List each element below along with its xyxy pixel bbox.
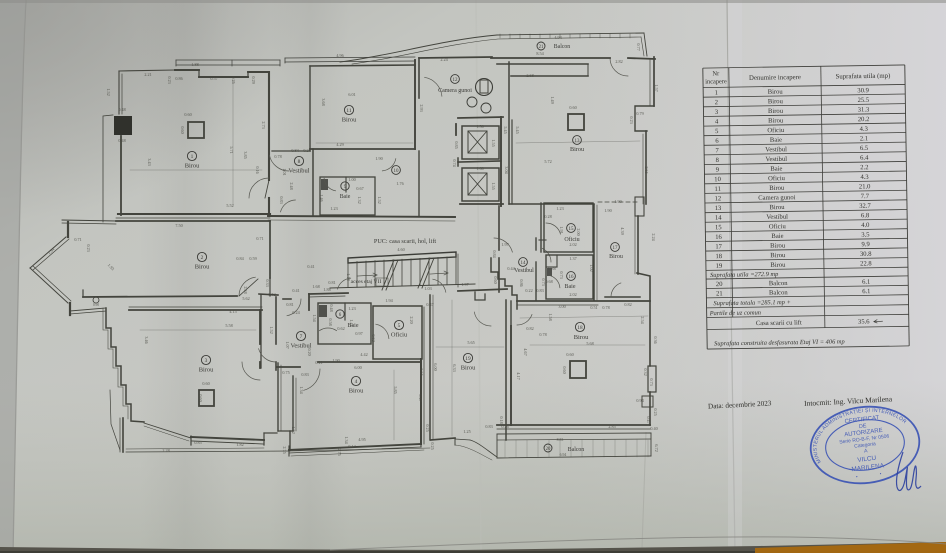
svg-text:2.28: 2.28: [162, 448, 169, 453]
svg-text:0.33: 0.33: [265, 279, 270, 286]
svg-text:4.17: 4.17: [516, 372, 521, 379]
svg-text:6.01: 6.01: [348, 92, 355, 97]
svg-text:5.45: 5.45: [515, 126, 520, 133]
svg-text:0.97: 0.97: [355, 331, 362, 336]
svg-text:1.76: 1.76: [396, 181, 403, 186]
svg-text:6.00: 6.00: [354, 365, 361, 370]
svg-text:2.02: 2.02: [569, 292, 576, 297]
svg-text:Birou: Birou: [570, 146, 584, 153]
svg-text:0.84: 0.84: [291, 148, 299, 153]
svg-text:0.84: 0.84: [236, 256, 244, 261]
svg-text:PUC: casa scarii, hol, lift: PUC: casa scarii, hol, lift: [374, 238, 436, 245]
svg-text:21: 21: [716, 290, 723, 297]
svg-text:6.8: 6.8: [861, 212, 870, 219]
svg-text:0.60: 0.60: [569, 105, 576, 110]
svg-text:7: 7: [300, 334, 303, 340]
svg-text:5.71: 5.71: [229, 146, 234, 153]
svg-text:4.60: 4.60: [397, 247, 404, 252]
svg-text:Oficiu: Oficiu: [769, 223, 787, 230]
svg-text:0.60: 0.60: [493, 276, 498, 283]
svg-text:20: 20: [546, 447, 551, 452]
svg-text:0.77: 0.77: [636, 43, 641, 50]
svg-text:0.22: 0.22: [525, 288, 532, 293]
svg-text:0.78: 0.78: [274, 154, 281, 159]
svg-text:0.25: 0.25: [653, 408, 658, 415]
svg-text:0.74: 0.74: [452, 159, 457, 167]
svg-text:0.83: 0.83: [536, 288, 543, 293]
svg-text:0.94: 0.94: [636, 398, 644, 403]
svg-text:1.97: 1.97: [461, 282, 468, 287]
svg-text:1.02: 1.02: [589, 264, 594, 271]
svg-text:0.48: 0.48: [118, 107, 125, 112]
svg-text:2.02: 2.02: [569, 242, 576, 247]
svg-text:11: 11: [714, 186, 720, 193]
svg-text:0.60: 0.60: [562, 366, 567, 373]
svg-text:21: 21: [539, 45, 544, 50]
svg-text:4.94: 4.94: [554, 35, 562, 40]
svg-text:4.3: 4.3: [860, 174, 869, 181]
svg-text:Casa scarii cu lift: Casa scarii cu lift: [756, 319, 802, 327]
svg-text:Oficiu: Oficiu: [768, 175, 786, 182]
svg-text:Vestibul: Vestibul: [765, 146, 787, 153]
svg-text:7.50: 7.50: [175, 223, 182, 228]
svg-text:0.82: 0.82: [624, 302, 631, 307]
svg-text:Birou: Birou: [770, 262, 786, 269]
svg-text:5.62: 5.62: [242, 296, 249, 301]
svg-text:Balcon: Balcon: [769, 280, 788, 287]
svg-text:0.41: 0.41: [292, 288, 299, 293]
svg-text:0.79: 0.79: [636, 111, 643, 116]
svg-text:1.18: 1.18: [346, 273, 351, 280]
svg-text:0.60: 0.60: [198, 394, 203, 401]
svg-text:Birou: Birou: [195, 264, 210, 271]
svg-text:1.00: 1.00: [348, 177, 355, 182]
svg-text:2.24: 2.24: [651, 233, 656, 241]
svg-text:12: 12: [453, 78, 459, 83]
svg-text:32.7: 32.7: [859, 203, 871, 210]
svg-text:1.01: 1.01: [282, 168, 287, 175]
svg-text:2.1: 2.1: [860, 135, 868, 142]
svg-text:1.97: 1.97: [501, 242, 508, 247]
svg-text:2.82: 2.82: [615, 59, 622, 64]
svg-text:9.9: 9.9: [861, 241, 870, 248]
svg-text:0.88: 0.88: [548, 266, 555, 271]
svg-text:1.90: 1.90: [375, 156, 382, 161]
svg-text:5.85: 5.85: [393, 386, 398, 393]
svg-text:2.75: 2.75: [337, 448, 342, 455]
svg-text:1.55: 1.55: [491, 139, 496, 146]
svg-text:Suprafata utila =272.9 mp: Suprafata utila =272.9 mp: [710, 271, 778, 279]
svg-text:Birou: Birou: [609, 254, 623, 260]
svg-text:0.85: 0.85: [454, 141, 459, 148]
svg-text:17: 17: [613, 246, 619, 251]
svg-text:1.23: 1.23: [330, 206, 337, 211]
svg-text:4.29: 4.29: [336, 142, 343, 147]
svg-text:0.25: 0.25: [425, 424, 430, 431]
svg-text:1.52: 1.52: [106, 88, 111, 95]
svg-text:2.48: 2.48: [243, 286, 248, 293]
svg-text:3.00: 3.00: [558, 304, 565, 309]
svg-text:0.60: 0.60: [184, 112, 191, 117]
svg-text:18: 18: [715, 253, 722, 260]
svg-text:1.90: 1.90: [614, 199, 621, 204]
svg-text:5.72: 5.72: [544, 159, 551, 164]
svg-text:Birou: Birou: [770, 252, 786, 259]
svg-text:0.23: 0.23: [86, 244, 91, 251]
svg-text:0.83: 0.83: [301, 372, 308, 377]
svg-text:Balcon: Balcon: [554, 44, 571, 50]
svg-text:0.24: 0.24: [303, 148, 311, 153]
svg-text:30.9: 30.9: [857, 87, 869, 94]
svg-text:Birou: Birou: [770, 242, 786, 249]
svg-text:2: 2: [715, 99, 718, 106]
svg-text:Vestibul: Vestibul: [765, 156, 787, 163]
svg-text:1.55: 1.55: [491, 182, 496, 189]
svg-text:1.57: 1.57: [654, 84, 659, 91]
svg-text:Birou: Birou: [769, 185, 785, 192]
svg-text:0.59: 0.59: [249, 256, 256, 261]
svg-text:0.84: 0.84: [492, 250, 497, 258]
svg-text:16: 16: [715, 234, 722, 241]
svg-text:1.88: 1.88: [323, 287, 330, 292]
svg-text:1.37: 1.37: [569, 256, 576, 261]
svg-text:2: 2: [201, 255, 204, 261]
svg-text:1.60: 1.60: [476, 166, 483, 171]
svg-text:22.8: 22.8: [860, 260, 872, 267]
svg-text:3.68: 3.68: [321, 98, 326, 105]
svg-text:3.85: 3.85: [243, 151, 248, 158]
svg-text:6.1: 6.1: [862, 279, 870, 286]
svg-text:0.60: 0.60: [566, 352, 573, 357]
svg-text:1.90: 1.90: [332, 358, 339, 363]
svg-text:0.23: 0.23: [167, 76, 172, 83]
svg-text:0.81: 0.81: [328, 280, 335, 285]
svg-text:2.2: 2.2: [860, 164, 868, 171]
svg-text:1.94: 1.94: [385, 298, 393, 303]
svg-text:31.3: 31.3: [858, 106, 870, 113]
svg-text:2.20: 2.20: [409, 316, 414, 323]
svg-text:6.33: 6.33: [452, 364, 457, 371]
svg-text:Camera gunoi: Camera gunoi: [438, 88, 472, 94]
svg-text:1: 1: [714, 90, 717, 97]
svg-text:0.73: 0.73: [649, 378, 654, 385]
svg-text:3.5: 3.5: [861, 231, 870, 238]
svg-text:1.23: 1.23: [556, 206, 563, 211]
svg-text:2.24: 2.24: [440, 57, 448, 62]
svg-text:Vestibul: Vestibul: [766, 214, 788, 221]
svg-text:Birou: Birou: [768, 98, 784, 105]
svg-text:0.47: 0.47: [646, 416, 651, 423]
svg-text:1.25: 1.25: [463, 429, 470, 434]
svg-text:Baie: Baie: [565, 284, 576, 290]
svg-text:0.44: 0.44: [507, 266, 515, 271]
svg-text:0.48: 0.48: [329, 304, 334, 311]
svg-text:Oficiu: Oficiu: [767, 127, 785, 134]
svg-text:2.65: 2.65: [644, 166, 649, 173]
svg-text:Baie: Baie: [771, 233, 783, 240]
svg-text:0.23: 0.23: [629, 116, 634, 123]
svg-text:Oficiu: Oficiu: [391, 332, 408, 339]
svg-text:1.52: 1.52: [291, 426, 296, 433]
svg-text:0.86: 0.86: [175, 76, 182, 81]
svg-text:13: 13: [715, 205, 722, 212]
svg-text:25.5: 25.5: [858, 97, 870, 104]
svg-text:Birou: Birou: [199, 367, 214, 374]
svg-text:13: 13: [575, 139, 581, 144]
svg-text:Vestibul: Vestibul: [289, 168, 310, 175]
svg-text:0.67: 0.67: [356, 186, 363, 191]
svg-text:1.50: 1.50: [476, 124, 483, 129]
svg-text:17: 17: [715, 243, 722, 250]
svg-text:Birou: Birou: [768, 117, 784, 124]
svg-text:Birou: Birou: [768, 108, 784, 115]
svg-text:7.7: 7.7: [861, 193, 870, 200]
svg-text:0.14: 0.14: [348, 444, 356, 449]
svg-text:1.03: 1.03: [424, 286, 431, 291]
svg-text:0.62: 0.62: [371, 334, 376, 341]
svg-text:Baie: Baie: [770, 166, 782, 173]
svg-text:2.93: 2.93: [419, 104, 424, 111]
svg-text:8.53: 8.53: [557, 438, 564, 442]
svg-text:1.90: 1.90: [604, 208, 611, 213]
svg-text:3.55: 3.55: [419, 368, 424, 375]
svg-text:4.42: 4.42: [360, 352, 367, 357]
svg-text:0.85: 0.85: [194, 440, 201, 445]
svg-text:0.62: 0.62: [337, 326, 344, 331]
svg-text:6.4: 6.4: [860, 155, 869, 162]
svg-text:0.86: 0.86: [519, 279, 524, 286]
svg-text:0.57: 0.57: [210, 76, 217, 81]
svg-text:1.54: 1.54: [312, 314, 317, 322]
svg-text:2.48: 2.48: [289, 182, 294, 189]
svg-text:0.60: 0.60: [202, 381, 209, 386]
svg-text:3: 3: [205, 358, 208, 364]
svg-text:Suprafata totala =285.1 mp +: Suprafata totala =285.1 mp +: [713, 299, 790, 307]
svg-text:0.73: 0.73: [559, 271, 564, 278]
svg-text:3.46: 3.46: [144, 336, 149, 343]
svg-text:0.20: 0.20: [307, 348, 312, 355]
svg-text:6.72: 6.72: [654, 444, 659, 451]
svg-text:5.68: 5.68: [586, 341, 593, 346]
svg-text:0.41: 0.41: [307, 264, 314, 269]
svg-text:0.21: 0.21: [315, 360, 322, 365]
svg-text:4.39: 4.39: [620, 227, 625, 234]
svg-text:12: 12: [715, 195, 722, 202]
svg-text:1.34: 1.34: [299, 386, 304, 394]
svg-text:1.91: 1.91: [559, 226, 564, 233]
svg-text:Vestibul: Vestibul: [514, 268, 534, 274]
svg-text:1.88: 1.88: [191, 62, 198, 67]
svg-text:Birou: Birou: [185, 163, 200, 170]
svg-text:1.52: 1.52: [269, 326, 274, 333]
svg-text:4: 4: [355, 379, 358, 385]
svg-text:0.81: 0.81: [286, 302, 293, 307]
svg-text:10: 10: [714, 176, 721, 183]
svg-text:2.00: 2.00: [576, 228, 581, 235]
svg-text:5.52: 5.52: [226, 203, 233, 208]
svg-text:2.73: 2.73: [261, 121, 266, 128]
svg-text:0.18: 0.18: [499, 416, 504, 423]
svg-text:30.8: 30.8: [860, 251, 872, 258]
svg-text:3.04: 3.04: [504, 166, 509, 174]
svg-text:4.3: 4.3: [860, 126, 869, 133]
svg-text:0.75: 0.75: [282, 370, 289, 375]
svg-text:acces etaj VII: acces etaj VII: [351, 279, 382, 285]
svg-text:Partile de uz comun: Partile de uz comun: [709, 309, 761, 317]
svg-text:0.47: 0.47: [418, 394, 423, 401]
svg-text:8: 8: [298, 159, 301, 165]
svg-text:16: 16: [569, 275, 575, 280]
svg-text:4.0: 4.0: [861, 222, 870, 229]
svg-text:18: 18: [577, 325, 583, 331]
svg-text:1.46: 1.46: [319, 194, 324, 201]
svg-text:20: 20: [716, 281, 723, 288]
svg-text:5.45: 5.45: [503, 126, 508, 133]
svg-text:0.60: 0.60: [180, 126, 185, 133]
svg-text:Birou: Birou: [349, 388, 364, 395]
svg-text:0.71: 0.71: [256, 236, 263, 241]
svg-text:14: 14: [521, 261, 527, 266]
svg-text:Birou: Birou: [342, 117, 357, 124]
svg-text:0.78: 0.78: [602, 305, 609, 310]
svg-text:14: 14: [715, 215, 722, 222]
svg-text:Birou: Birou: [574, 334, 589, 341]
svg-text:0.26: 0.26: [501, 424, 508, 429]
svg-text:8.54: 8.54: [536, 51, 544, 56]
svg-text:1.82: 1.82: [236, 442, 243, 447]
svg-text:0.25: 0.25: [430, 442, 435, 449]
svg-text:0.71: 0.71: [74, 237, 81, 242]
svg-text:6.1: 6.1: [862, 288, 870, 295]
svg-text:0.68: 0.68: [545, 279, 552, 284]
svg-text:4.67: 4.67: [523, 348, 528, 355]
svg-text:2.54: 2.54: [640, 316, 645, 324]
svg-text:0.78: 0.78: [539, 332, 546, 337]
svg-text:0.82: 0.82: [526, 326, 533, 331]
svg-text:1.52: 1.52: [377, 196, 382, 203]
svg-text:0.51: 0.51: [590, 305, 597, 310]
svg-text:20.2: 20.2: [858, 116, 870, 123]
svg-text:1.41: 1.41: [349, 319, 354, 326]
svg-text:0.48: 0.48: [118, 138, 125, 143]
svg-text:1.23: 1.23: [348, 306, 355, 311]
svg-text:Camera gunoi: Camera gunoi: [758, 194, 795, 202]
svg-text:6.94: 6.94: [560, 453, 567, 457]
svg-text:0.36: 0.36: [653, 336, 658, 343]
svg-text:5.58: 5.58: [225, 323, 232, 328]
svg-text:0.58: 0.58: [328, 318, 333, 325]
svg-text:0.83: 0.83: [279, 196, 284, 203]
svg-text:4.95: 4.95: [358, 437, 365, 442]
svg-text:21.0: 21.0: [859, 183, 871, 190]
svg-text:0.40: 0.40: [650, 426, 657, 431]
svg-text:Birou: Birou: [768, 89, 784, 96]
svg-text:0.52: 0.52: [268, 292, 275, 297]
svg-text:2.85: 2.85: [608, 424, 615, 429]
svg-text:11: 11: [346, 108, 351, 114]
svg-text:1.32: 1.32: [357, 196, 362, 203]
svg-text:Baie: Baie: [340, 194, 351, 200]
svg-text:1.49: 1.49: [550, 96, 555, 103]
svg-text:0.16: 0.16: [255, 166, 260, 173]
svg-text:35.6: 35.6: [858, 318, 870, 325]
svg-text:2.21: 2.21: [144, 72, 151, 77]
svg-text:19: 19: [716, 263, 723, 270]
svg-text:1.58: 1.58: [548, 313, 553, 320]
svg-text:2.68: 2.68: [526, 73, 533, 78]
svg-text:2.75: 2.75: [282, 446, 287, 453]
svg-text:15: 15: [715, 224, 722, 231]
svg-text:4.15: 4.15: [229, 309, 236, 314]
svg-text:incapere: incapere: [705, 78, 727, 85]
svg-text:1.07: 1.07: [285, 341, 290, 348]
svg-text:0.24: 0.24: [292, 310, 300, 315]
svg-text:Birou: Birou: [769, 204, 785, 211]
svg-text:10: 10: [394, 169, 400, 174]
svg-text:3.43: 3.43: [147, 158, 152, 165]
svg-text:Balcon: Balcon: [769, 289, 788, 296]
svg-text:6.00: 6.00: [433, 363, 438, 370]
svg-text:0.90: 0.90: [93, 303, 99, 307]
svg-text:4.96: 4.96: [336, 53, 343, 58]
svg-text:5: 5: [398, 323, 401, 329]
svg-text:0.29: 0.29: [251, 76, 256, 83]
svg-text:0.32: 0.32: [643, 368, 648, 375]
svg-text:1: 1: [191, 154, 194, 160]
svg-text:0.25: 0.25: [231, 76, 236, 83]
svg-text:0.83: 0.83: [485, 424, 492, 429]
svg-text:1.68: 1.68: [312, 284, 319, 289]
svg-text:Baie: Baie: [770, 137, 782, 144]
svg-text:15: 15: [569, 227, 575, 232]
svg-text:Denumire incapere: Denumire incapere: [749, 74, 801, 82]
svg-text:Suprafata utila (mp): Suprafata utila (mp): [836, 73, 891, 81]
svg-text:Nr: Nr: [712, 70, 720, 77]
svg-text:0.28: 0.28: [544, 214, 551, 219]
svg-text:Birou: Birou: [461, 365, 476, 372]
svg-text:0.47: 0.47: [426, 302, 433, 307]
svg-text:6.5: 6.5: [860, 145, 869, 152]
svg-text:19: 19: [465, 356, 471, 362]
svg-text:5.65: 5.65: [467, 340, 474, 345]
